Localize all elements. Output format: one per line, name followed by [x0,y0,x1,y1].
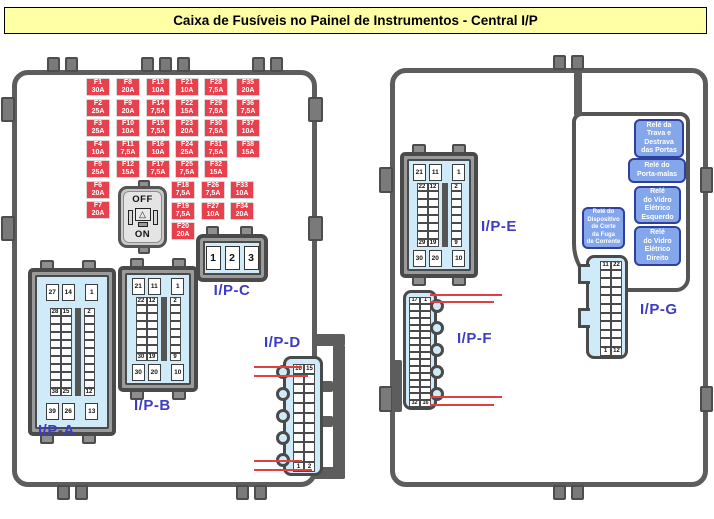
fuse-F4: F410A [86,140,110,158]
fuse-F37: F3710A [236,119,260,137]
tab-decor [571,485,584,500]
tab-decor [47,57,60,72]
fuse-F1: F130A [86,78,110,96]
fuse-F21: F2110A [175,78,199,96]
fuse-F7: F720A [86,201,110,219]
tab-decor [700,167,713,193]
label-ip-f: I/P-F [457,330,492,347]
fuse-F23: F2320A [175,119,199,137]
switch-off-label: OFF [132,194,153,205]
tab-decor [141,57,154,72]
ip-c-pin-1: 1 [206,246,221,270]
fuse-F26: F267,5A [201,181,225,199]
fuse-F24: F2425A [175,140,199,158]
label-ip-c: I/P-C [196,282,268,299]
fuse-F34: F3420A [230,202,254,220]
tab-decor [700,386,713,412]
tab-decor [379,167,393,193]
leader-line [254,460,302,462]
fuse-F22: F2215A [175,99,199,117]
connector-ip-b: 211112212301929302010 [118,266,198,392]
fuse-group-col5b: F267,5AF2710A [201,181,225,220]
fuse-F18: F187,5A [171,181,195,199]
diagram-title: Caixa de Fusíveis no Painel de Instrumen… [173,13,538,28]
fuse-F5: F525A [86,160,110,178]
leader-line [430,396,502,398]
fuse-F19: F197,5A [171,202,195,220]
switch-on-label: ON [135,229,150,240]
fuse-F28: F287,5A [204,78,228,96]
ip-c-pin-2: 2 [225,246,240,270]
solid-decor [574,72,582,116]
label-ip-d: I/P-D [264,334,301,351]
label-ip-e: I/P-E [481,218,517,235]
fuse-F10: F1010A [116,119,140,137]
fuse-F30: F307,5A [204,119,228,137]
tab-decor [270,57,283,72]
tab-decor [75,485,88,500]
ip-c-pin-3: 3 [244,246,259,270]
relay-vidro-dir: Relédo VidroElétricoDireito [634,226,681,266]
connector-ip-g: 1122112 [586,255,628,359]
fuse-group-col3: F1310AF147,5AF157,5AF1610AF177,5A [146,78,170,178]
fuse-F25: F257,5A [175,160,199,178]
leader-line [430,301,494,303]
fuse-F31: F317,5A [204,140,228,158]
relay-trava: Relé daTrava eDestravadas Portas [634,119,684,158]
label-ip-a: I/P-A [38,422,75,439]
tab-decor [159,57,172,72]
connector-ip-e: 211112212291929302010 [400,152,478,278]
tab-decor [254,485,267,500]
switch-face: OFF △ ON [123,191,162,243]
diagram-title-bar: Caixa de Fusíveis no Painel de Instrumen… [4,7,707,34]
fuse-F27: F2710A [201,202,225,220]
relay-vidro-esq: Relédo VidroElétricoEsquerdo [634,186,681,224]
fuse-F32: F3215A [204,160,228,178]
tab-decor [571,55,584,70]
tab-decor [379,386,393,412]
fuse-F20: F2020A [171,222,195,240]
leader-line [254,366,302,368]
tab-decor [553,55,566,70]
fuse-F35: F3520A [236,78,260,96]
label-ip-g: I/P-G [640,301,678,318]
tab-decor [1,216,15,241]
leader-line [430,404,494,406]
tab-decor [65,57,78,72]
fuse-F15: F157,5A [146,119,170,137]
fuse-F6: F620A [86,181,110,199]
tab-decor [177,57,190,72]
fuse-group-col1: F130AF225AF325AF410AF525AF620AF720A [86,78,110,219]
fuse-F33: F3310A [230,181,254,199]
leader-line [254,469,312,471]
relay-porta-malas: Relé doPorta-malas [628,158,686,183]
connector-ip-a: 2714128153825212392613 [28,268,116,436]
tab-decor [308,97,323,122]
fuse-F29: F297,5A [204,99,228,117]
fuse-F8: F820A [116,78,140,96]
fuse-F12: F1215A [116,160,140,178]
fuse-group-col2: F820AF920AF1010AF117,5AF1215A [116,78,140,178]
tab-decor [57,485,70,500]
key-switch-icon: △ [128,208,158,227]
fuse-F2: F225A [86,99,110,117]
fuse-F36: F367,5A [236,99,260,117]
tab-decor [252,57,265,72]
tab-decor [236,485,249,500]
tab-decor [553,485,566,500]
fuse-group-col6: F3520AF367,5AF3710AF3815A [236,78,260,158]
fuse-group-col6b: F3310AF3420A [230,181,254,220]
tab-decor [308,216,323,241]
fuse-F17: F177,5A [146,160,170,178]
fuse-F11: F117,5A [116,140,140,158]
fuse-F9: F920A [116,99,140,117]
ignition-switch: OFF △ ON [118,186,167,248]
leader-line [430,294,502,296]
solid-decor [333,345,345,479]
label-ip-b: I/P-B [134,397,171,414]
fuse-group-col4: F2110AF2215AF2320AF2425AF257,5A [175,78,199,178]
fuse-F38: F3815A [236,140,260,158]
connector-ip-d: 161512 [283,356,323,476]
fuse-F3: F325A [86,119,110,137]
leader-line [254,375,308,377]
relay-dispositivo: Relé doDispositivode Corteda Fugade Corr… [582,207,625,249]
tab-decor [1,97,15,122]
fuse-group-col5: F287,5AF297,5AF307,5AF317,5AF3215A [204,78,228,178]
connector-ip-c: 123 [196,234,268,282]
fuse-F16: F1610A [146,140,170,158]
fuse-group-col4b: F187,5AF197,5AF2020A [171,181,195,240]
solid-decor [392,360,402,412]
connector-ip-f: 1713216 [403,290,437,410]
fuse-F13: F1310A [146,78,170,96]
fusebox-diagram: Caixa de Fusíveis no Painel de Instrumen… [0,0,714,519]
fuse-F14: F147,5A [146,99,170,117]
